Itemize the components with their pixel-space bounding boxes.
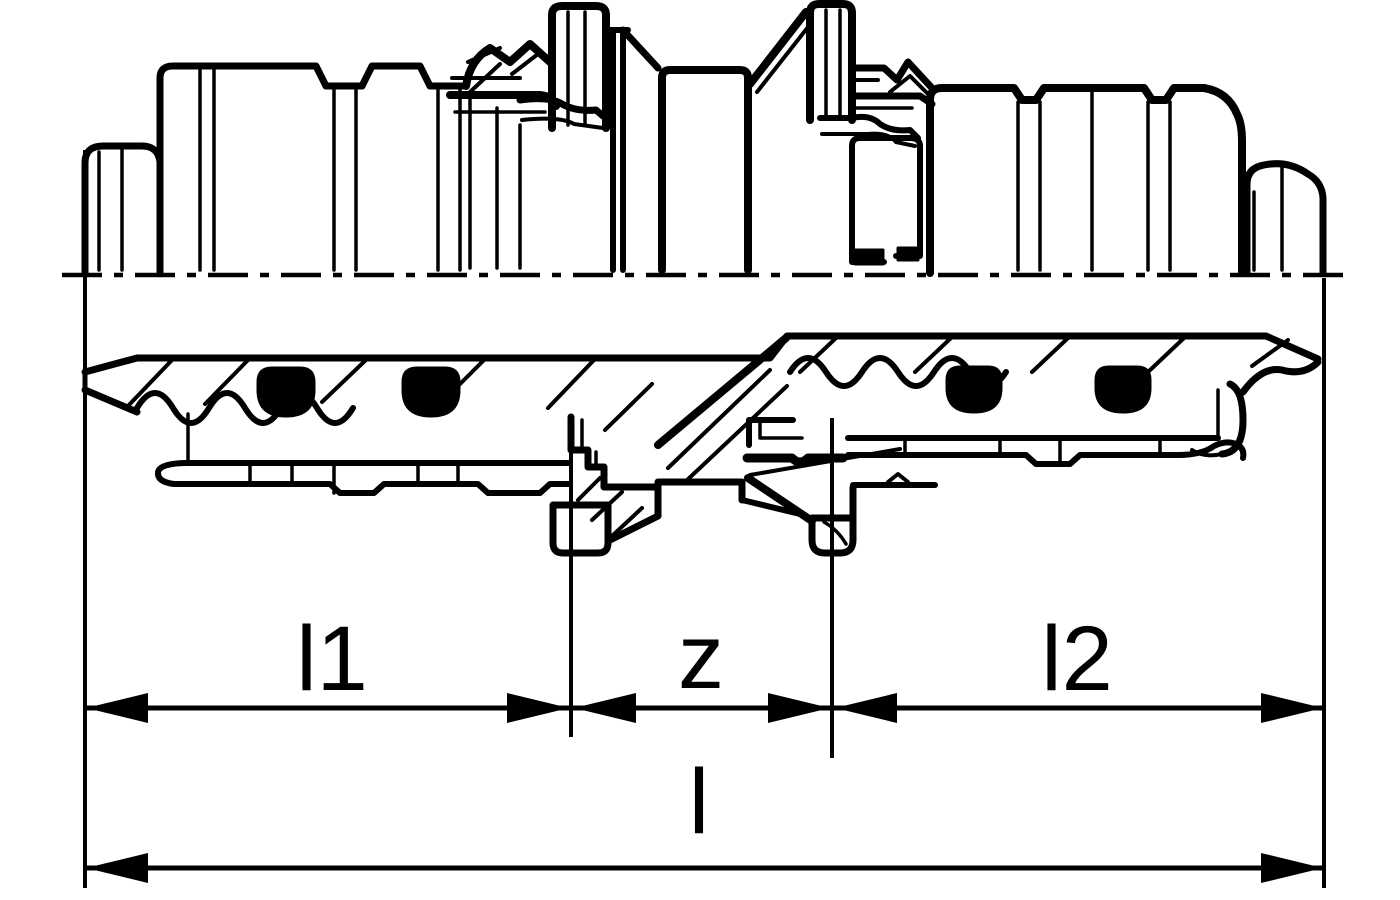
body-left-bevel [623, 30, 658, 68]
bore-bottom-left [612, 482, 742, 500]
band-left-tip [85, 390, 137, 412]
pipe-right-end-cap [1247, 164, 1323, 273]
hatch-lines-right [800, 338, 1288, 372]
pipe-left-corrugation-lines [200, 70, 460, 270]
hatch-lines-left [128, 358, 594, 408]
o-ring-right-1 [947, 367, 1001, 412]
arrowhead [86, 693, 148, 723]
clip-right-teeth-detail [852, 76, 928, 94]
band-left-wavy-bottom [137, 393, 353, 423]
arrowhead [1261, 693, 1323, 723]
dimensioning: l1 z l2 l [85, 150, 1324, 888]
pipe-wall-section-left [158, 414, 570, 493]
clip-right-tower-grooves [826, 10, 840, 115]
body-center-outline [662, 70, 748, 270]
arrowhead [1261, 853, 1323, 883]
arrowhead [86, 853, 148, 883]
pipe-right-wall-bottom [848, 442, 1243, 464]
pipe-left-outline [160, 66, 466, 273]
bottom-half-section-view [85, 336, 1318, 553]
arrowhead [768, 693, 830, 723]
body-left-column [608, 30, 628, 270]
nose-right-foot-arc [824, 522, 846, 544]
clip-left-verticals [470, 95, 520, 268]
o-ring-left-1 [258, 368, 314, 416]
body-section-diagonal [658, 338, 786, 445]
fitting-cross-section-drawing: l1 z l2 l [0, 0, 1400, 900]
pipe-right-end-cap-grooves [1254, 166, 1282, 270]
pipe-left-end-cap-groove [99, 148, 122, 270]
body-right-wing-diagonal-echo [757, 22, 812, 92]
clip-left-flange-curve-2 [522, 119, 603, 128]
sleeve-right-corrugation-lines [1018, 92, 1170, 270]
arrowhead [574, 693, 636, 723]
top-half-exterior-view [85, 4, 1323, 273]
pipe-left-end-cap [85, 146, 160, 273]
dimension-label-l-total: l [689, 751, 709, 853]
press-indicator-clip-left [450, 6, 606, 268]
pipe-left-wall-bottom [174, 484, 570, 493]
dimension-row-l-total: l [86, 751, 1323, 883]
pipe-wall-section-right [848, 438, 1243, 464]
clip-right-ledge [852, 96, 932, 104]
press-indicator-clip-right [810, 4, 932, 264]
dimension-label-l2: l2 [1041, 608, 1113, 710]
clip-right-tower [810, 4, 852, 120]
dimension-label-l1: l1 [296, 608, 368, 710]
press-sleeve-right [930, 88, 1242, 273]
fitting-nose-left [553, 417, 742, 553]
pipe-right-end-cap-outline [1247, 164, 1323, 273]
nose-right-bracket [749, 420, 793, 445]
dimension-row-l1-z-l2: l1 z l2 [86, 606, 1323, 723]
arrowhead [507, 693, 569, 723]
pipe-left-wall-tip [158, 463, 188, 484]
sleeve-right-outline [930, 88, 1242, 273]
body-right-wing-diagonal [750, 12, 806, 84]
dimension-label-z: z [678, 606, 724, 708]
technical-drawing-page: l1 z l2 l [0, 0, 1400, 900]
fitting-body-top [608, 12, 812, 270]
o-ring-right-2 [1096, 367, 1150, 412]
arrowhead [835, 693, 897, 723]
corrugated-pipe-left [160, 66, 466, 273]
clip-right-block [852, 138, 920, 262]
